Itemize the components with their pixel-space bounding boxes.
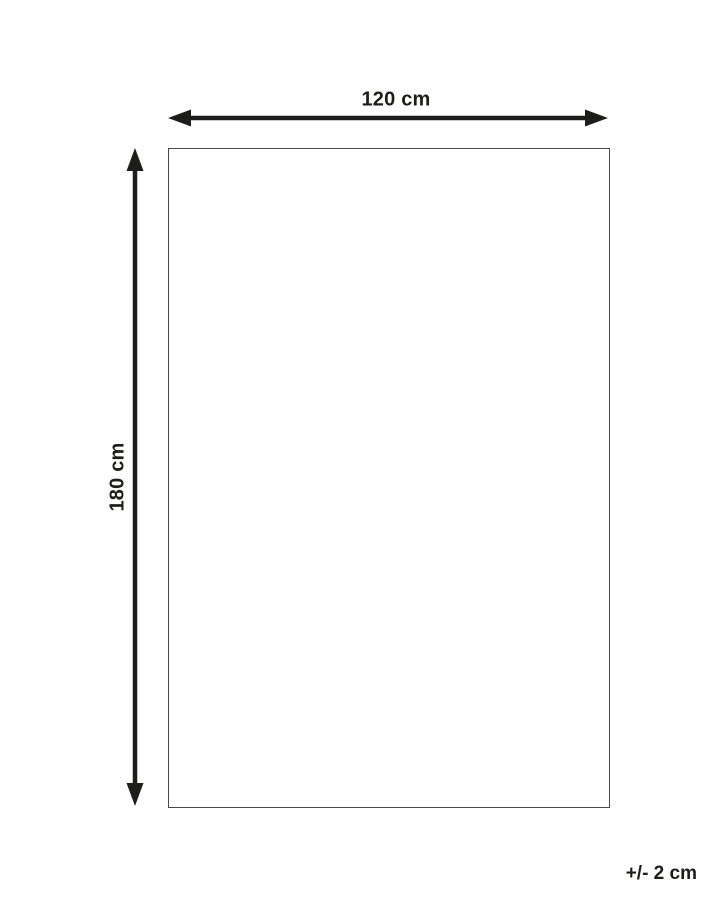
product-outline-rectangle — [168, 148, 610, 808]
height-double-arrow-icon — [121, 148, 149, 806]
width-double-arrow-icon — [168, 104, 608, 132]
dimension-diagram: 120 cm 180 cm +/- 2 cm — [0, 0, 720, 900]
tolerance-label: +/- 2 cm — [626, 863, 697, 885]
